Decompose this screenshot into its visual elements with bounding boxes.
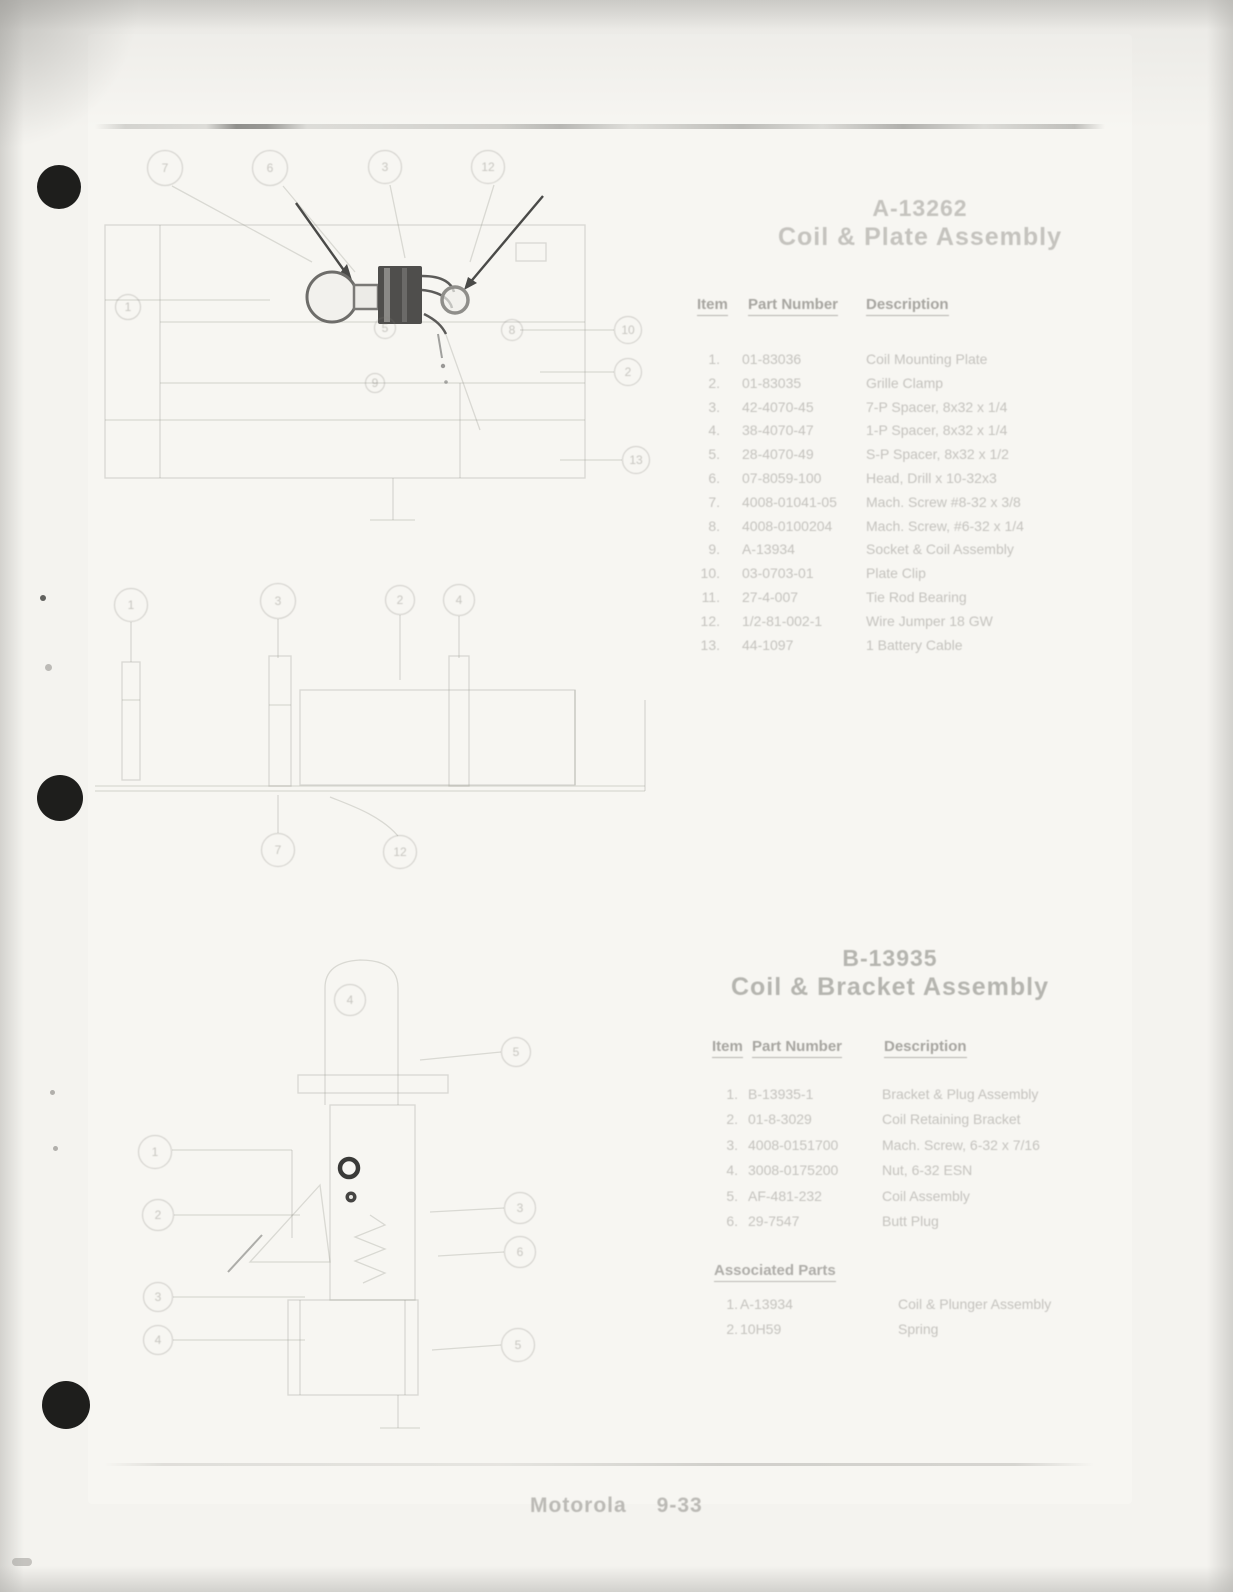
row-item-number: 1.	[712, 1292, 738, 1317]
callout-circle: 1	[114, 588, 148, 622]
section-a-title-block: A-13262 Coil & Plate Assembly	[740, 194, 1100, 252]
row-part-number: 28-4070-49	[742, 443, 814, 467]
table-row: 12. 1/2-81-002-1 Wire Jumper 18 GW	[694, 610, 1114, 634]
section-a-title: Coil & Plate Assembly	[740, 222, 1100, 252]
table-row: 13. 44-1097 1 Battery Cable	[694, 634, 1114, 658]
callout-circle: 5	[501, 1328, 535, 1362]
associated-parts-rows: 1. A-13934 Coil & Plunger Assembly 2. 10…	[712, 1292, 1142, 1342]
row-description: Coil Assembly	[882, 1184, 970, 1209]
table-b-header-part: Part Number	[752, 1038, 842, 1058]
table-row: 5. AF-481-232 Coil Assembly	[712, 1184, 1142, 1209]
table-b-header: Item Part Number Description	[712, 1038, 1112, 1060]
associated-parts-heading-text: Associated Parts	[714, 1262, 836, 1282]
section-b-title: Coil & Bracket Assembly	[710, 972, 1070, 1002]
row-part-number: AF-481-232	[748, 1184, 822, 1209]
row-item-number: 2.	[712, 1107, 738, 1132]
row-item-number: 2.	[694, 372, 720, 396]
row-description: Bracket & Plug Assembly	[882, 1082, 1038, 1107]
table-a-rows: 1. 01-83036 Coil Mounting Plate 2. 01-83…	[694, 348, 1114, 657]
row-part-number: 38-4070-47	[742, 419, 814, 443]
table-a-header-part: Part Number	[748, 296, 838, 316]
row-item-number: 5.	[694, 443, 720, 467]
callout-circle: 4	[143, 1325, 173, 1355]
row-part-number: 01-8-3029	[748, 1107, 812, 1132]
table-row: 8. 4008-0100204 Mach. Screw, #6-32 x 1/4	[694, 515, 1114, 539]
callout-circle: 2	[385, 585, 415, 615]
table-row: 3. 42-4070-45 7-P Spacer, 8x32 x 1/4	[694, 396, 1114, 420]
row-part-number: 4008-0100204	[742, 515, 832, 539]
row-item-number: 5.	[712, 1184, 738, 1209]
table-row: 9. A-13934 Socket & Coil Assembly	[694, 538, 1114, 562]
callout-circle: 13	[622, 446, 650, 474]
callout-circle: 12	[383, 835, 417, 869]
row-item-number: 4.	[712, 1158, 738, 1183]
table-a-header: Item Part Number Description	[697, 296, 1097, 318]
row-description: Coil & Plunger Assembly	[898, 1292, 1051, 1317]
associated-parts-heading: Associated Parts	[714, 1262, 836, 1279]
row-part-number: 03-0703-01	[742, 562, 814, 586]
table-row: 2. 10H59 Spring	[712, 1317, 1142, 1342]
table-row: 2. 01-8-3029 Coil Retaining Bracket	[712, 1107, 1142, 1132]
bracket-diagram-lines	[172, 960, 504, 1428]
callout-circle: 3	[368, 150, 402, 184]
row-item-number: 10.	[694, 562, 720, 586]
callout-circle: 1	[138, 1135, 172, 1169]
table-row: 6. 29-7547 Butt Plug	[712, 1209, 1142, 1234]
row-item-number: 7.	[694, 491, 720, 515]
row-part-number: 42-4070-45	[742, 396, 814, 420]
row-part-number: 3008-0175200	[748, 1158, 838, 1183]
row-description: Butt Plug	[882, 1209, 939, 1234]
table-b-header-desc: Description	[884, 1038, 967, 1058]
row-item-number: 6.	[712, 1209, 738, 1234]
row-item-number: 9.	[694, 538, 720, 562]
row-description: Tie Rod Bearing	[866, 586, 967, 610]
row-item-number: 1.	[694, 348, 720, 372]
table-row: 1. A-13934 Coil & Plunger Assembly	[712, 1292, 1142, 1317]
section-b-title-block: B-13935 Coil & Bracket Assembly	[710, 944, 1070, 1002]
callout-circle: 8	[501, 319, 523, 341]
table-row: 2. 01-83035 Grille Clamp	[694, 372, 1114, 396]
callout-circle: 1	[115, 294, 141, 320]
row-description: Head, Drill x 10-32x3	[866, 467, 997, 491]
table-row: 10. 03-0703-01 Plate Clip	[694, 562, 1114, 586]
row-description: 1-P Spacer, 8x32 x 1/4	[866, 419, 1007, 443]
callout-circle: 4	[443, 584, 475, 616]
row-item-number: 6.	[694, 467, 720, 491]
row-description: Wire Jumper 18 GW	[866, 610, 993, 634]
page-footer: Motorola 9-33	[530, 1494, 703, 1518]
table-row: 1. 01-83036 Coil Mounting Plate	[694, 348, 1114, 372]
row-description: Plate Clip	[866, 562, 926, 586]
row-item-number: 13.	[694, 634, 720, 658]
hardware-diagram-lines	[95, 615, 645, 836]
table-row: 1. B-13935-1 Bracket & Plug Assembly	[712, 1082, 1142, 1107]
table-row: 4. 3008-0175200 Nut, 6-32 ESN	[712, 1158, 1142, 1183]
table-row: 11. 27-4-007 Tie Rod Bearing	[694, 586, 1114, 610]
table-b-rows: 1. B-13935-1 Bracket & Plug Assembly 2. …	[712, 1082, 1142, 1234]
row-description: Grille Clamp	[866, 372, 943, 396]
row-description: Coil Retaining Bracket	[882, 1107, 1021, 1132]
plate-diagram-lines	[105, 185, 622, 520]
table-row: 5. 28-4070-49 S-P Spacer, 8x32 x 1/2	[694, 443, 1114, 467]
row-part-number: 01-83036	[742, 348, 801, 372]
row-item-number: 3.	[694, 396, 720, 420]
footer-page-number: 9-33	[657, 1494, 703, 1518]
row-description: 7-P Spacer, 8x32 x 1/4	[866, 396, 1007, 420]
row-item-number: 11.	[694, 586, 720, 610]
row-description: Socket & Coil Assembly	[866, 538, 1014, 562]
table-row: 7. 4008-01041-05 Mach. Screw #8-32 x 3/8	[694, 491, 1114, 515]
row-part-number: A-13934	[742, 538, 795, 562]
callout-circle: 4	[334, 984, 366, 1016]
callout-circle: 10	[614, 316, 642, 344]
row-description: Mach. Screw, #6-32 x 1/4	[866, 515, 1024, 539]
row-part-number: 01-83035	[742, 372, 801, 396]
callout-circle: 3	[143, 1282, 173, 1312]
callout-circle: 3	[260, 583, 296, 619]
row-part-number: 27-4-007	[742, 586, 798, 610]
callout-circle: 6	[504, 1236, 536, 1268]
callout-circle: 2	[614, 358, 642, 386]
callout-circle: 9	[365, 373, 385, 393]
callout-circle: 12	[471, 150, 505, 184]
footer-brand: Motorola	[530, 1494, 627, 1518]
scanned-parts-page: 76312158910213 1324712 451236345 A-13262…	[0, 0, 1233, 1592]
row-description: Spring	[898, 1317, 938, 1342]
table-b-header-item: Item	[712, 1038, 743, 1058]
row-item-number: 12.	[694, 610, 720, 634]
row-part-number: B-13935-1	[748, 1082, 813, 1107]
row-item-number: 4.	[694, 419, 720, 443]
row-description: 1 Battery Cable	[866, 634, 963, 658]
table-row: 3. 4008-0151700 Mach. Screw, 6-32 x 7/16	[712, 1133, 1142, 1158]
callout-circle: 2	[142, 1199, 174, 1231]
callout-circle: 5	[501, 1037, 531, 1067]
row-description: Nut, 6-32 ESN	[882, 1158, 972, 1183]
row-part-number: 44-1097	[742, 634, 793, 658]
row-description: Mach. Screw, 6-32 x 7/16	[882, 1133, 1040, 1158]
table-row: 4. 38-4070-47 1-P Spacer, 8x32 x 1/4	[694, 419, 1114, 443]
row-description: Coil Mounting Plate	[866, 348, 987, 372]
row-description: S-P Spacer, 8x32 x 1/2	[866, 443, 1009, 467]
row-description: Mach. Screw #8-32 x 3/8	[866, 491, 1021, 515]
row-item-number: 1.	[712, 1082, 738, 1107]
section-a-part-code: A-13262	[740, 194, 1100, 222]
row-part-number: A-13934	[740, 1292, 793, 1317]
row-part-number: 4008-0151700	[748, 1133, 838, 1158]
row-part-number: 1/2-81-002-1	[742, 610, 822, 634]
table-a-header-item: Item	[697, 296, 728, 316]
row-item-number: 8.	[694, 515, 720, 539]
row-item-number: 2.	[712, 1317, 738, 1342]
row-item-number: 3.	[712, 1133, 738, 1158]
row-part-number: 07-8059-100	[742, 467, 821, 491]
callout-circle: 6	[252, 150, 288, 186]
row-part-number: 29-7547	[748, 1209, 799, 1234]
callout-circle: 3	[504, 1192, 536, 1224]
row-part-number: 4008-01041-05	[742, 491, 837, 515]
callout-circle: 7	[261, 833, 295, 867]
row-part-number: 10H59	[740, 1317, 781, 1342]
callout-circle: 5	[374, 317, 396, 339]
callout-circle: 7	[147, 150, 183, 186]
clamp-hardware	[296, 196, 543, 384]
section-b-part-code: B-13935	[710, 944, 1070, 972]
table-row: 6. 07-8059-100 Head, Drill x 10-32x3	[694, 467, 1114, 491]
table-a-header-desc: Description	[866, 296, 949, 316]
